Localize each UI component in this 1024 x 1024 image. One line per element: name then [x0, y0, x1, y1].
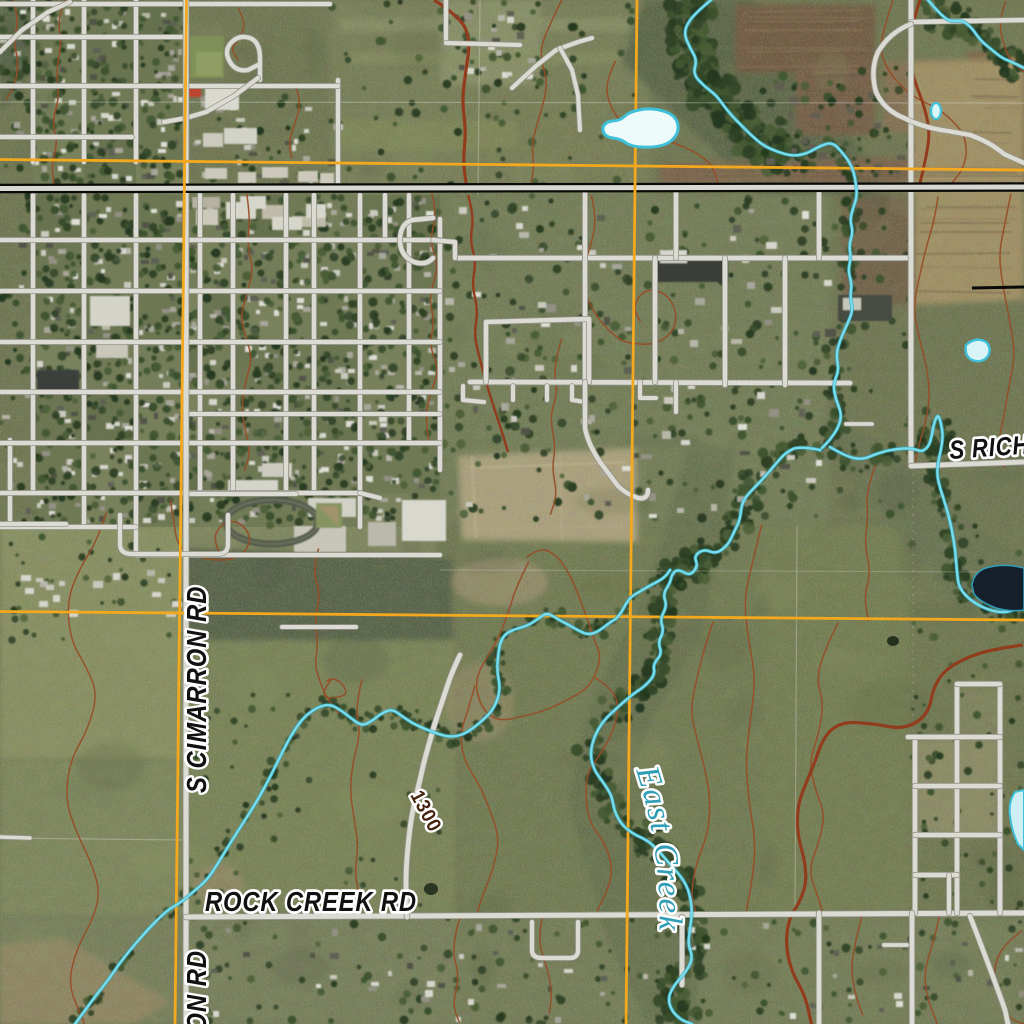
svg-text:ROCK CREEK RD: ROCK CREEK RD — [205, 885, 417, 917]
svg-text:RRON RD: RRON RD — [180, 950, 212, 1024]
svg-text:S RICHL: S RICHL — [948, 430, 1024, 466]
svg-text:S CIMARRON RD: S CIMARRON RD — [180, 585, 212, 793]
